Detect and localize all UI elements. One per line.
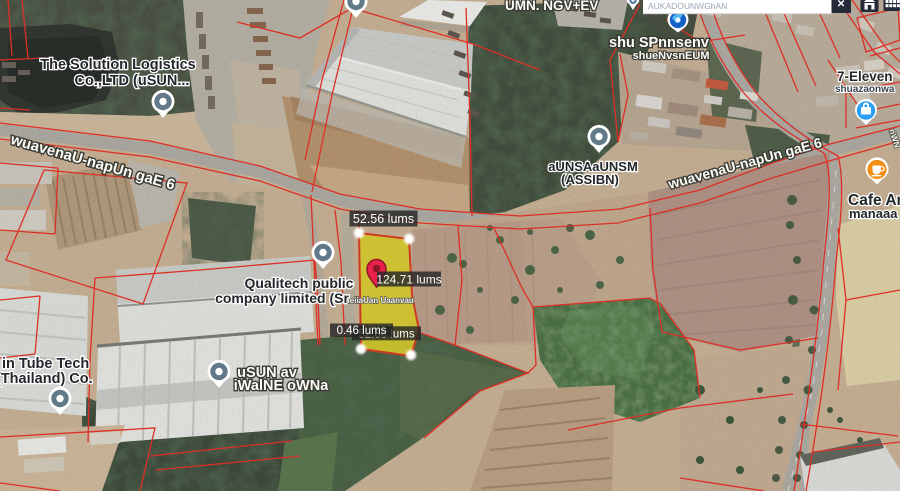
svg-text:Co.,LTD (uSUN...: Co.,LTD (uSUN... <box>75 73 190 89</box>
svg-text:0.46 lums: 0.46 lums <box>337 325 387 337</box>
svg-text:AUKADOUNWGhAN: AUKADOUNWGhAN <box>648 1 727 11</box>
svg-text:7-Eleven: 7-Eleven <box>837 69 893 84</box>
svg-text:manaaa: manaaa <box>849 206 898 221</box>
svg-text:shuazaonwa: shuazaonwa <box>835 84 895 95</box>
svg-text:124.71 lums: 124.71 lums <box>376 272 441 286</box>
svg-text:company limited (Sr: company limited (Sr <box>215 290 349 306</box>
svg-text:shueNvsnEUM: shueNvsnEUM <box>632 50 709 62</box>
svg-text:(ASSIBN): (ASSIBN) <box>561 172 619 187</box>
svg-text:uneiiaUan Uaanvau: uneiiaUan Uaanvau <box>340 296 414 305</box>
svg-text:The Solution Logistics: The Solution Logistics <box>40 57 195 73</box>
svg-text:52.56 lums: 52.56 lums <box>353 212 414 226</box>
svg-text:iWalNE oWNa: iWalNE oWNa <box>234 378 329 394</box>
svg-text:in Tube Tech: in Tube Tech <box>2 356 89 372</box>
svg-text:shu SPnnsenv: shu SPnnsenv <box>609 35 709 51</box>
svg-text:UMN. NGV+EV: UMN. NGV+EV <box>505 0 598 13</box>
svg-text:(Thailand) Co.: (Thailand) Co. <box>0 371 93 387</box>
svg-text:Qualitech public: Qualitech public <box>245 275 354 291</box>
